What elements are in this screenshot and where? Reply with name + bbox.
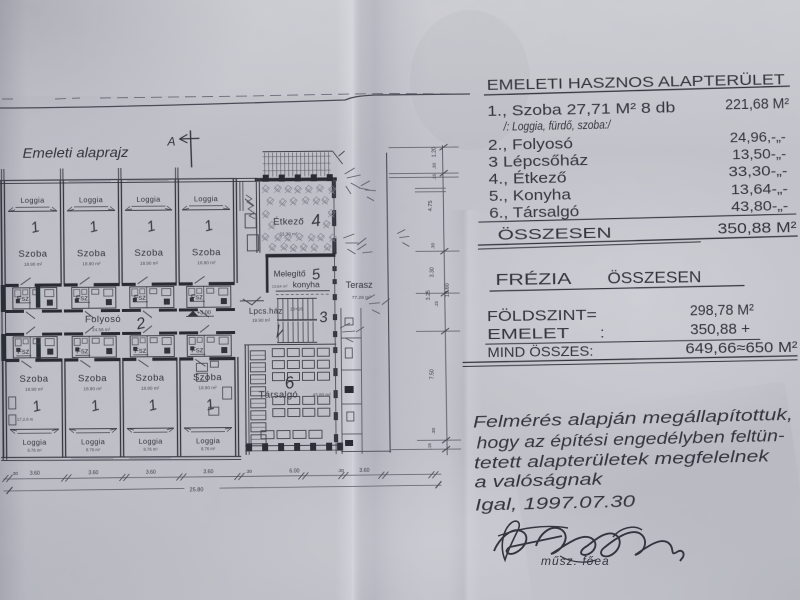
- svg-text:MIND ÖSSZES:: MIND ÖSSZES:: [487, 342, 593, 360]
- svg-text:8.76 m²: 8.76 m²: [201, 446, 216, 451]
- svg-text:18.90 m²: 18.90 m²: [140, 261, 159, 266]
- svg-text:Fsz: Fsz: [76, 293, 88, 302]
- svg-text:18.90 m²: 18.90 m²: [197, 260, 216, 265]
- svg-text:18.90 m²: 18.90 m²: [84, 386, 103, 391]
- svg-text:.15: .15: [434, 301, 439, 308]
- svg-text:350,88 M²: 350,88 M²: [717, 219, 796, 238]
- svg-text:33,30-„-: 33,30-„-: [728, 162, 788, 179]
- svg-text:.30: .30: [431, 427, 436, 434]
- svg-text:18.90 m²: 18.90 m²: [141, 386, 160, 391]
- svg-text:2., Folyosó: 2., Folyosó: [488, 136, 573, 154]
- svg-text::: :: [600, 324, 604, 341]
- svg-text:Terasz: Terasz: [346, 280, 374, 290]
- svg-text:Fsz: Fsz: [134, 346, 146, 355]
- svg-text:13,64-„-: 13,64-„-: [731, 180, 789, 197]
- svg-text:8.76 m²: 8.76 m²: [28, 448, 43, 453]
- svg-text:műsz. főea: műsz. főea: [541, 554, 610, 568]
- svg-text:33.30 m²: 33.30 m²: [279, 231, 298, 236]
- svg-text:3.25: 3.25: [426, 290, 432, 300]
- svg-text:19.90 m²: 19.90 m²: [252, 318, 271, 323]
- svg-text:a valóságnak: a valóságnak: [474, 470, 603, 491]
- svg-text:298,78 M²: 298,78 M²: [690, 301, 754, 319]
- svg-text:Emeleti alaprajz: Emeleti alaprajz: [22, 144, 128, 161]
- svg-text:4., Étkező: 4., Étkező: [488, 169, 566, 187]
- svg-text:Folyosó: Folyosó: [85, 314, 121, 325]
- svg-text:Étkező: Étkező: [273, 216, 304, 227]
- svg-text:Fsz: Fsz: [191, 292, 203, 301]
- svg-text:Szoba: Szoba: [134, 248, 163, 259]
- svg-text:.30: .30: [432, 162, 437, 169]
- svg-text:18.90 m²: 18.90 m²: [24, 262, 43, 267]
- svg-text:Fsz: Fsz: [191, 345, 203, 354]
- svg-text:3.60: 3.60: [359, 468, 369, 474]
- svg-text:18×16: 18×16: [290, 306, 303, 311]
- svg-text:3 Lépcsőház: 3 Lépcsőház: [488, 153, 588, 171]
- svg-text:Loggia: Loggia: [196, 436, 221, 445]
- svg-text:Fsz: Fsz: [76, 346, 88, 355]
- svg-text:Loggia: Loggia: [139, 437, 164, 446]
- svg-text:19.60: 19.60: [445, 283, 451, 297]
- svg-text:Loggia: Loggia: [194, 194, 219, 203]
- svg-text:Fsz: Fsz: [17, 347, 29, 356]
- svg-text:Szoba: Szoba: [77, 248, 106, 259]
- svg-text:konyha: konyha: [293, 280, 321, 289]
- svg-text:.30: .30: [337, 468, 344, 474]
- svg-text:24.56 m²: 24.56 m²: [92, 327, 111, 332]
- svg-text:Loggia: Loggia: [81, 437, 106, 446]
- svg-text:18.90 m²: 18.90 m²: [25, 387, 44, 392]
- svg-text:Melegítő: Melegítő: [274, 269, 307, 278]
- svg-text:Szoba: Szoba: [192, 247, 221, 258]
- svg-text:221,68 M²: 221,68 M²: [725, 96, 789, 113]
- svg-text:13,50-„-: 13,50-„-: [732, 145, 787, 162]
- svg-text:8.76 m²: 8.76 m²: [86, 447, 101, 452]
- svg-text:ÖSSZESEN: ÖSSZESEN: [607, 268, 701, 287]
- svg-text:24,96,-„-: 24,96,-„-: [730, 128, 787, 145]
- svg-text:1.20: 1.20: [432, 147, 438, 157]
- svg-text:17,2.6 m: 17,2.6 m: [17, 417, 34, 422]
- svg-text:3.30: 3.30: [430, 267, 436, 277]
- svg-text:649,66≈650 M²: 649,66≈650 M²: [685, 339, 797, 358]
- svg-text:FÖLDSZINT=: FÖLDSZINT=: [487, 306, 598, 326]
- svg-text:EMELET: EMELET: [487, 325, 569, 343]
- svg-text:.30: .30: [430, 242, 435, 249]
- svg-text:+3.00: +3.00: [197, 310, 211, 316]
- svg-text:43,80-„-: 43,80-„-: [731, 197, 789, 214]
- svg-text:18.90 m²: 18.90 m²: [199, 385, 218, 390]
- svg-text:3.60: 3.60: [30, 471, 40, 477]
- svg-text:350,88 +: 350,88 +: [690, 320, 750, 338]
- svg-text:5., Konyha: 5., Konyha: [489, 187, 572, 205]
- svg-text:8.76 m²: 8.76 m²: [144, 447, 159, 452]
- svg-text:3.60: 3.60: [203, 469, 213, 475]
- svg-text:Fsz: Fsz: [17, 294, 29, 303]
- svg-text:4.75: 4.75: [428, 200, 434, 211]
- svg-text:Szoba: Szoba: [19, 374, 48, 385]
- svg-text:/: Loggia, fürdő, szoba:/: /: Loggia, fürdő, szoba:/: [503, 120, 613, 134]
- svg-text:43,80 m²: 43,80 m²: [313, 392, 332, 397]
- svg-text:Szoba: Szoba: [18, 249, 47, 260]
- svg-text:Loggia: Loggia: [136, 195, 161, 204]
- svg-text:13,64 m²: 13,64 m²: [272, 284, 288, 289]
- svg-text:Loggia: Loggia: [79, 195, 104, 204]
- svg-text:A: A: [166, 135, 175, 149]
- svg-text:7.50: 7.50: [429, 369, 435, 379]
- svg-text:.15: .15: [427, 443, 432, 450]
- svg-text:Loggia: Loggia: [23, 438, 48, 447]
- svg-text:3.60: 3.60: [88, 470, 98, 476]
- svg-text:6.00: 6.00: [289, 468, 299, 474]
- svg-text:ÖSSZESEN: ÖSSZESEN: [497, 224, 611, 244]
- svg-text:25.80: 25.80: [189, 487, 203, 493]
- svg-text:Fsz: Fsz: [134, 293, 146, 302]
- svg-text:3.60: 3.60: [146, 470, 156, 476]
- svg-text:.30: .30: [11, 471, 18, 477]
- svg-text:.30: .30: [245, 469, 252, 475]
- svg-text:Szoba: Szoba: [135, 373, 164, 384]
- svg-text:Loggia: Loggia: [20, 196, 45, 205]
- svg-text:FRÉZIA: FRÉZIA: [495, 269, 572, 289]
- svg-text:18.90 m²: 18.90 m²: [82, 261, 101, 266]
- svg-text:6., Társalgó: 6., Társalgó: [489, 204, 579, 222]
- svg-text:77.28 m²: 77.28 m²: [352, 295, 371, 301]
- svg-text:Társalgó: Társalgó: [259, 389, 298, 400]
- svg-text:Szoba: Szoba: [78, 373, 107, 384]
- svg-text:.15: .15: [432, 173, 437, 180]
